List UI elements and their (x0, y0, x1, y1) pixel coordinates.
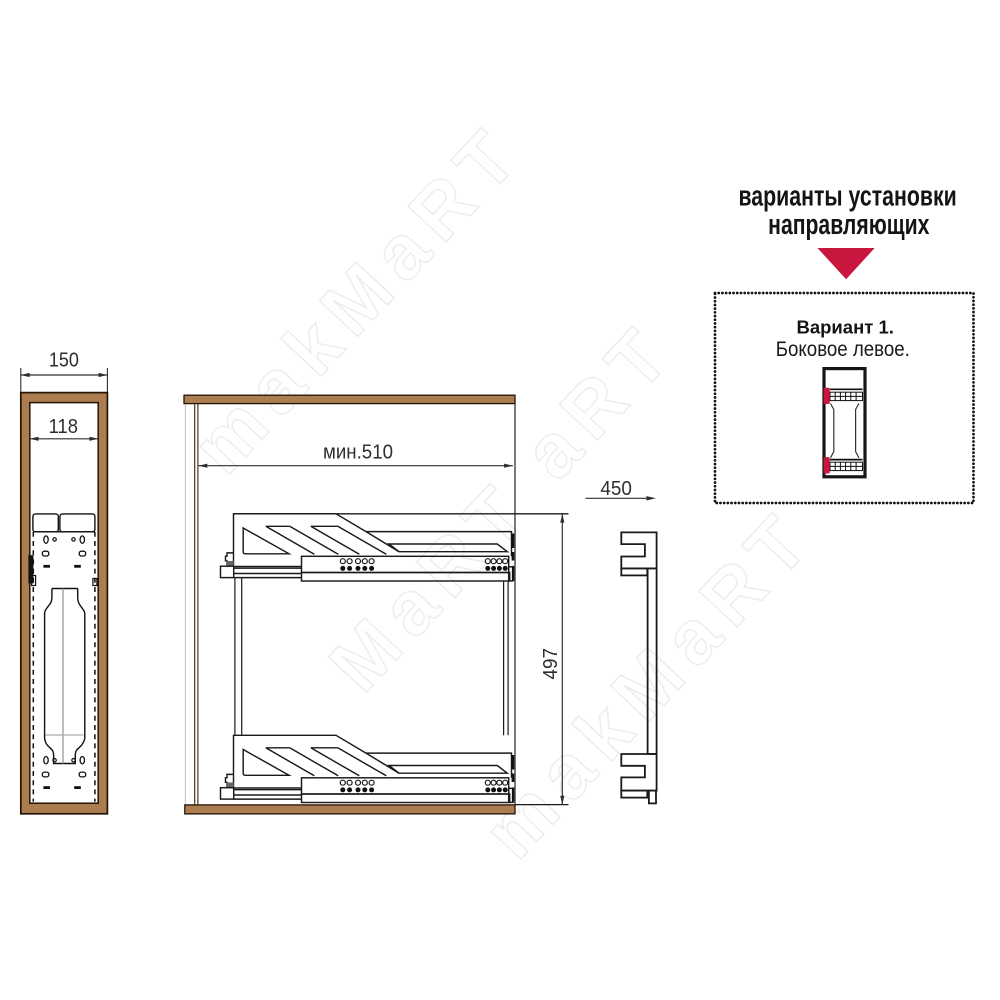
svg-text:450: 450 (600, 477, 632, 500)
svg-text:118: 118 (49, 417, 78, 439)
svg-text:Боковое левое.: Боковое левое. (776, 338, 910, 361)
svg-text:Вариант 1.: Вариант 1. (796, 316, 893, 337)
svg-text:мин.510: мин.510 (323, 441, 393, 464)
svg-text:497: 497 (539, 648, 562, 679)
svg-text:150: 150 (49, 350, 79, 372)
svg-text:варианты установки: варианты установки (738, 180, 956, 212)
svg-text:направляющих: направляющих (768, 209, 929, 241)
